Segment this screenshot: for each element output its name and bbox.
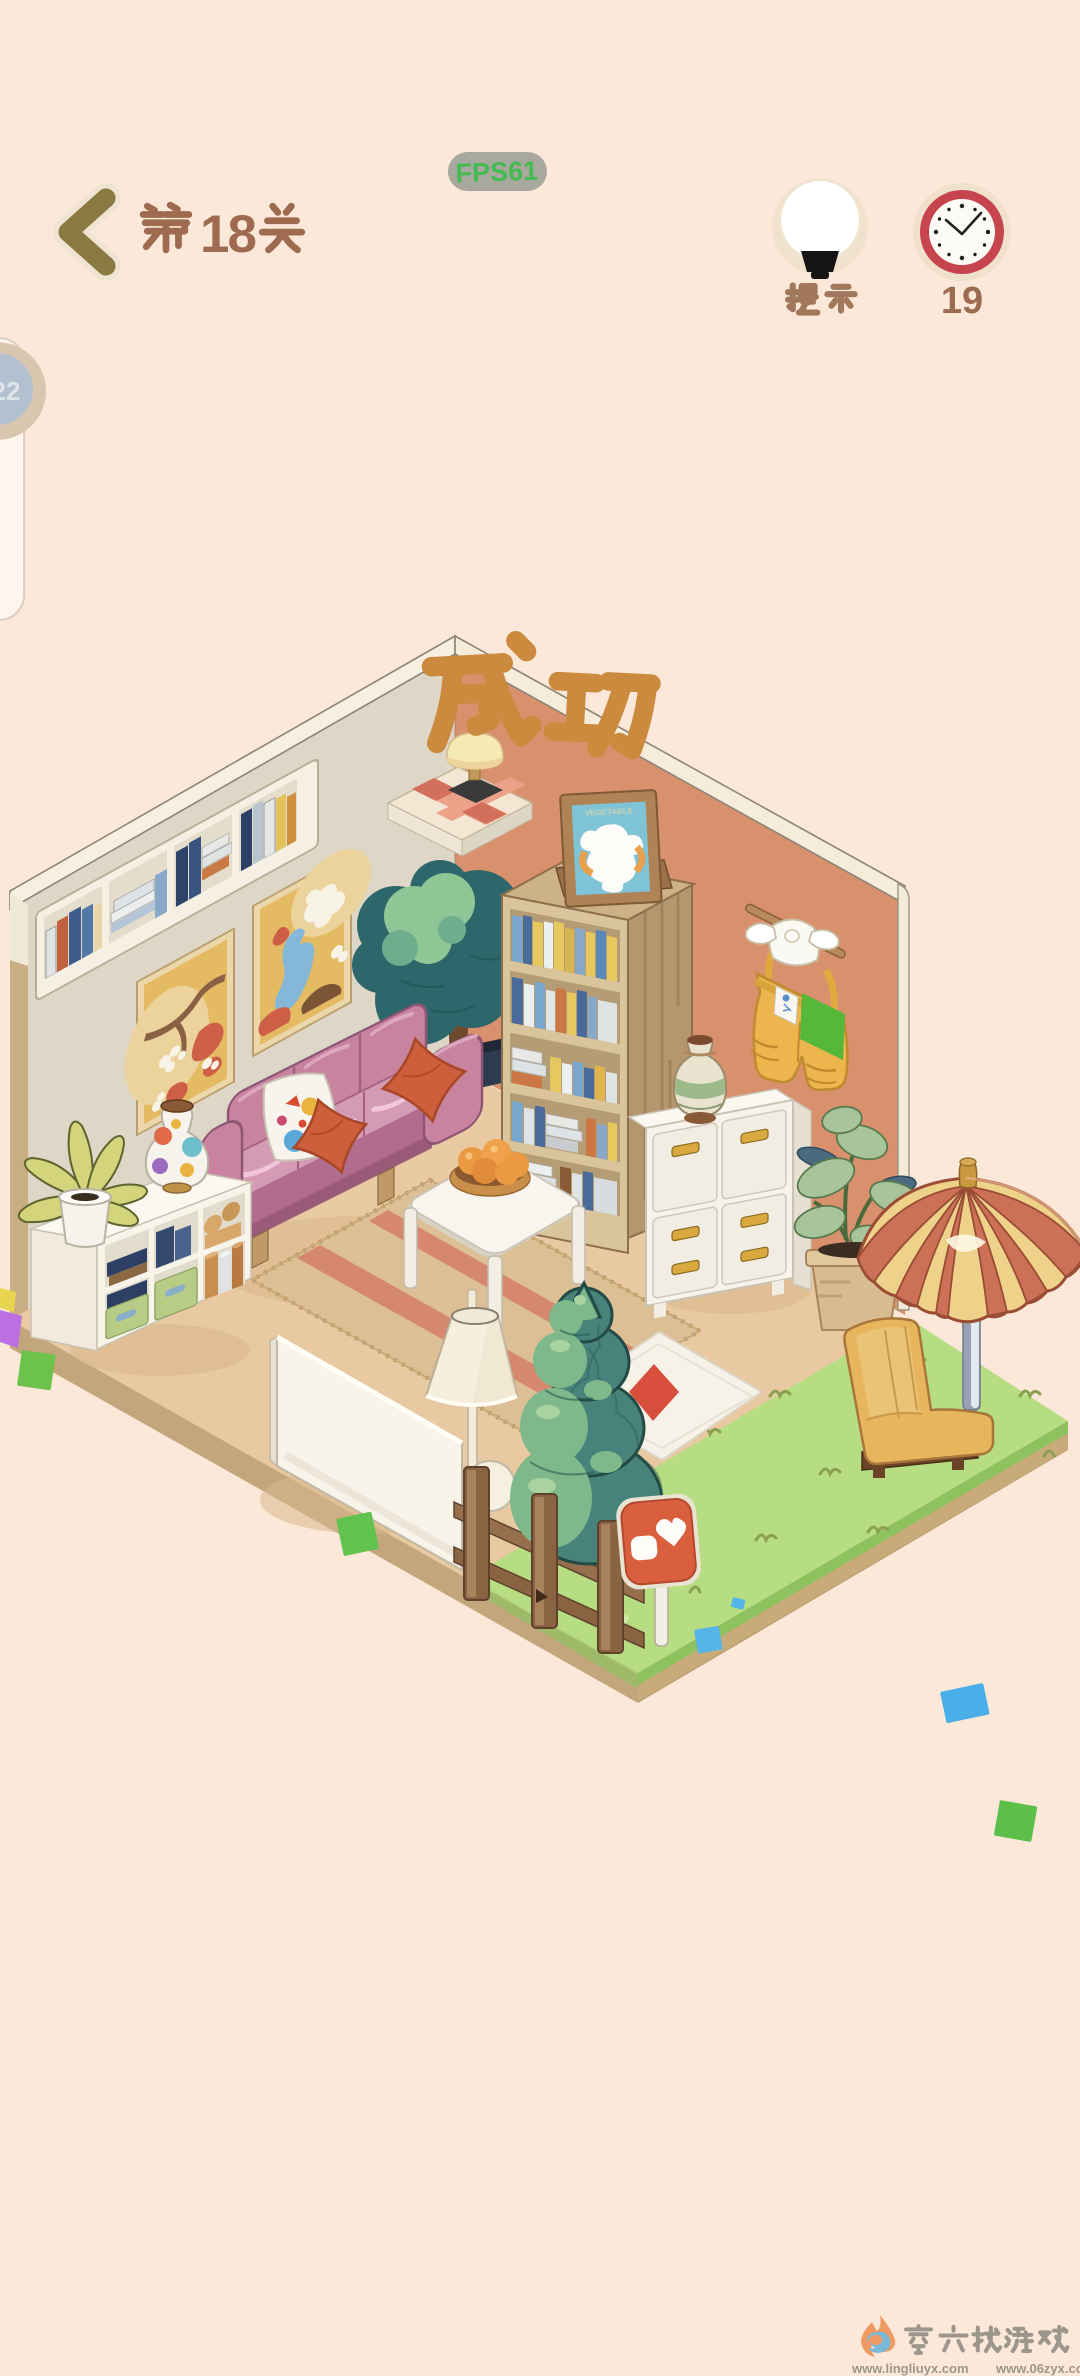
svg-text:18: 18	[200, 205, 255, 264]
svg-text:www.lingliuyx.com: www.lingliuyx.com	[851, 2361, 969, 2376]
svg-text:FPS61: FPS61	[455, 156, 539, 189]
svg-text:19: 19	[941, 280, 983, 322]
svg-text:22: 22	[0, 376, 20, 406]
svg-text:www.06zyx.com: www.06zyx.com	[995, 2361, 1080, 2376]
